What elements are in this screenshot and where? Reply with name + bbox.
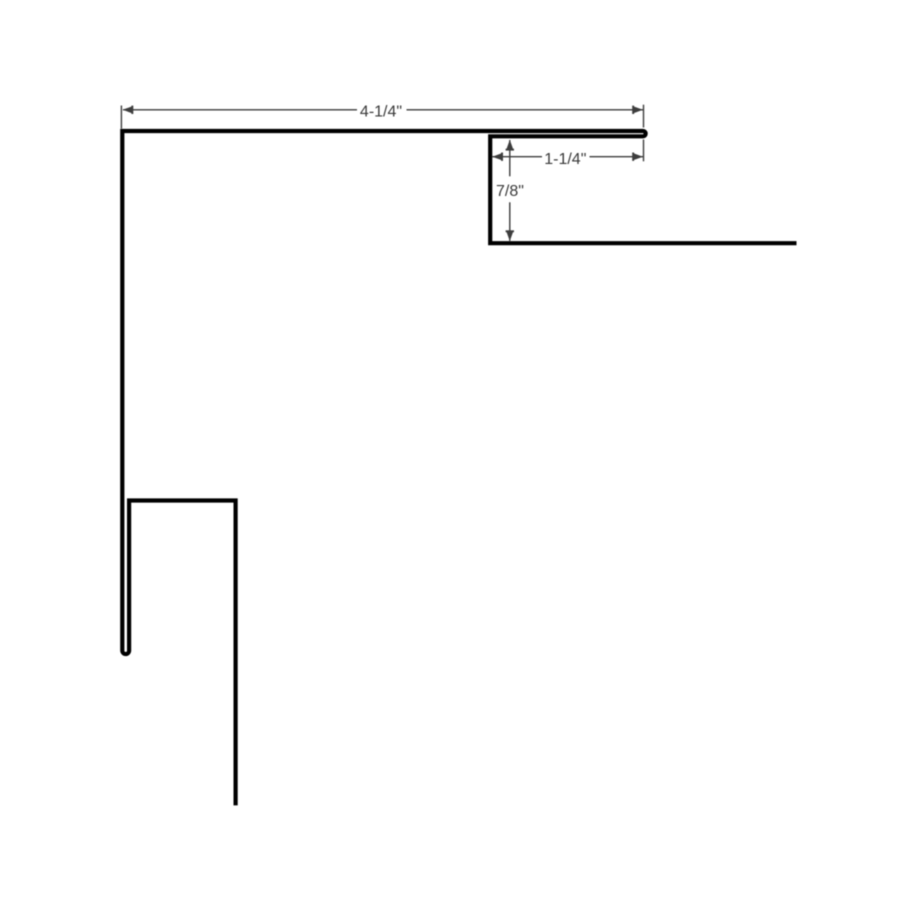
- svg-text:4-1/4": 4-1/4": [360, 104, 402, 121]
- svg-text:1-1/4": 1-1/4": [544, 151, 586, 168]
- svg-text:7/8": 7/8": [496, 183, 524, 200]
